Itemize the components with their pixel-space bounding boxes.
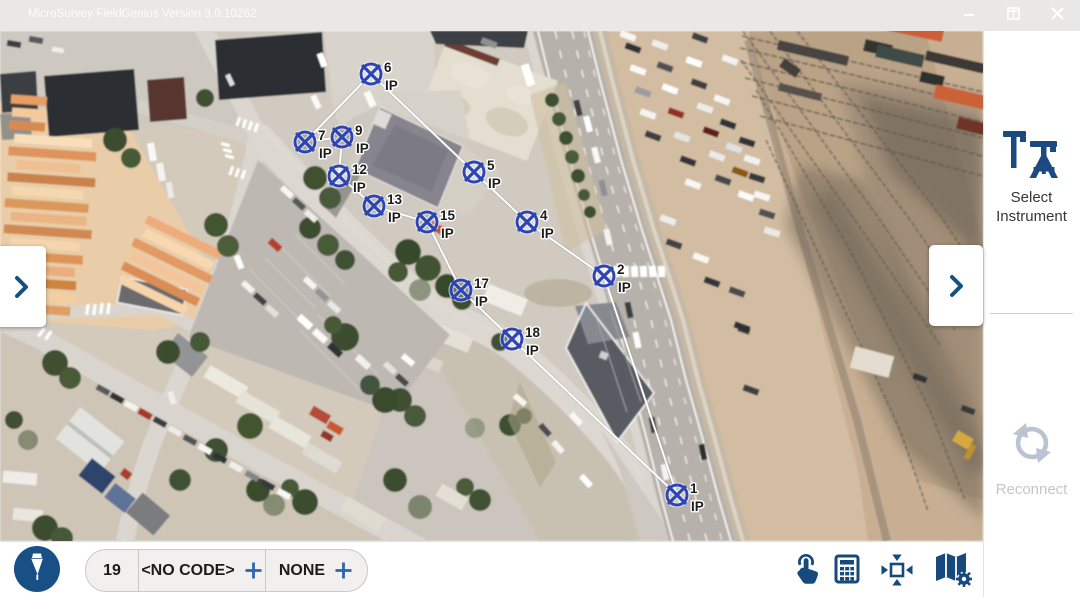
svg-text:7: 7 xyxy=(318,128,326,143)
svg-text:2: 2 xyxy=(617,262,625,277)
svg-text:IP: IP xyxy=(356,141,369,156)
svg-text:IP: IP xyxy=(541,226,554,241)
svg-text:4: 4 xyxy=(540,208,548,223)
svg-text:5: 5 xyxy=(487,158,495,173)
svg-text:IP: IP xyxy=(618,280,631,295)
svg-text:IP: IP xyxy=(475,294,488,309)
svg-text:IP: IP xyxy=(385,78,398,93)
svg-text:12: 12 xyxy=(352,162,367,177)
svg-text:6: 6 xyxy=(384,60,392,75)
svg-text:15: 15 xyxy=(440,208,456,223)
svg-text:13: 13 xyxy=(387,192,403,207)
svg-text:IP: IP xyxy=(388,210,401,225)
svg-text:IP: IP xyxy=(691,499,704,514)
svg-text:IP: IP xyxy=(319,146,332,161)
svg-text:17: 17 xyxy=(474,276,489,291)
svg-text:IP: IP xyxy=(441,226,454,241)
svg-text:18: 18 xyxy=(525,325,541,340)
svg-text:IP: IP xyxy=(353,180,366,195)
svg-text:IP: IP xyxy=(526,343,539,358)
svg-text:9: 9 xyxy=(355,123,363,138)
svg-text:IP: IP xyxy=(488,176,501,191)
svg-text:1: 1 xyxy=(690,481,698,496)
